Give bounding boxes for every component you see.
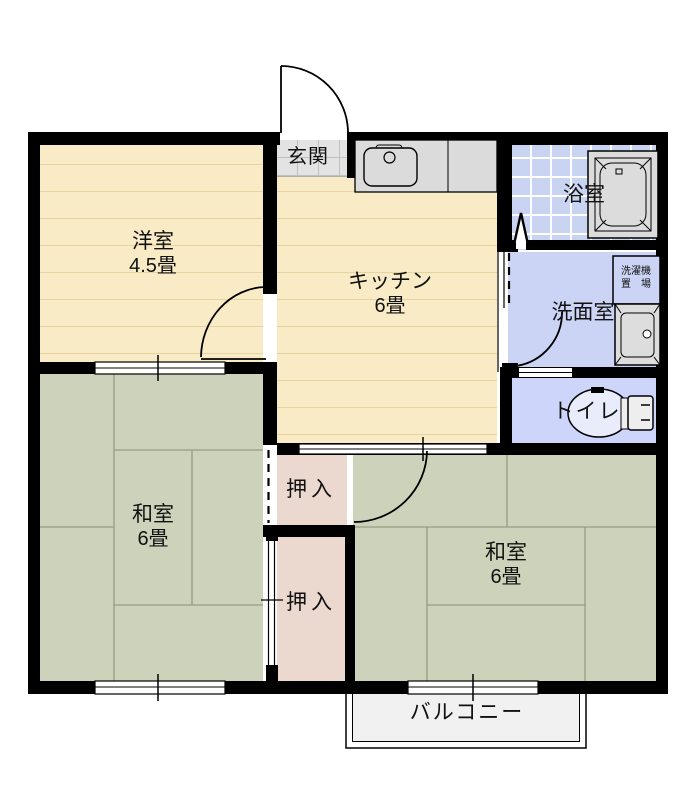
sink-icon [364,145,417,186]
label-balcony: バルコニー [410,701,525,725]
label-washroom: 洗面室 [552,301,615,325]
label-genkan: 玄関 [287,145,329,169]
western-room-door-arc [201,287,266,359]
fusuma-kitchen-japanese-right [299,437,487,461]
label-closet-upper: 押入 [286,478,336,502]
toilet-door [519,368,572,377]
closet-fusuma-symbol [261,541,283,665]
washbasin-icon [615,304,660,365]
label-toilet: トイレ [553,400,622,424]
label-bathroom: 浴室 [563,183,605,207]
label-japanese-room-left: 和室 6畳 [132,503,174,551]
label-western-room: 洋室 4.5畳 [129,230,177,278]
japanese-right-door-arc [354,451,427,522]
kitchen-counter [355,140,497,192]
folding-door-icon [510,213,532,250]
label-laundry-space: 洗濯機 置 場 [621,265,651,291]
label-closet-lower: 押入 [286,591,336,615]
floor-plan: 玄関 洋室 4.5畳 キッチン 6畳 浴室 洗濯機 置 場 洗面室 トイレ 和室… [0,0,699,812]
entrance-door-arc [281,66,348,133]
label-japanese-room-right: 和室 6畳 [485,541,527,589]
label-kitchen: キッチン 6畳 [348,270,432,318]
